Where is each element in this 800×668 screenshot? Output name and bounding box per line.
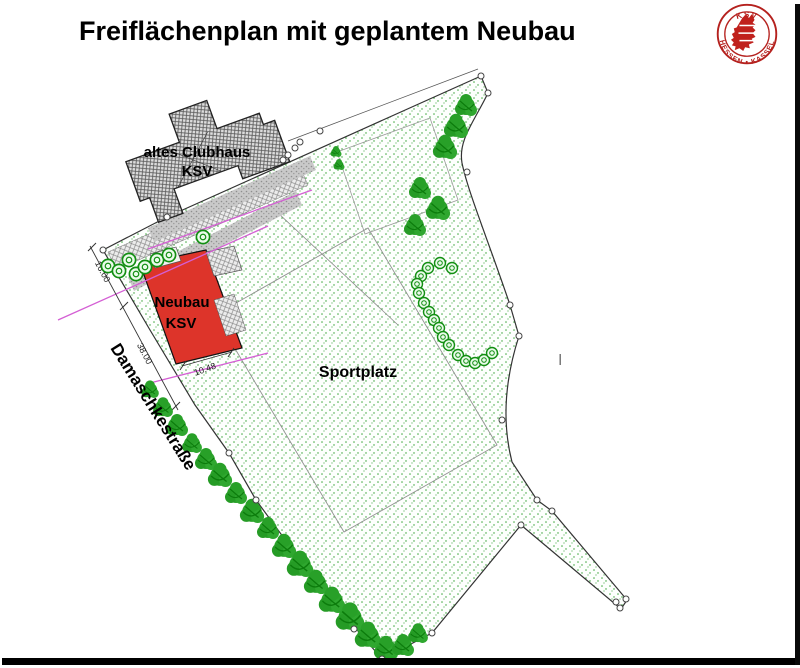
old-clubhouse-label-line2: KSV [182,163,213,180]
bottom-border-bar [2,658,798,665]
sportplatz-label: Sportplatz [319,364,397,381]
old-clubhouse-label-line1: altes Clubhaus [144,144,251,161]
site-plan: altes Clubhaus KSV Neubau KSV 16.00 38.0… [0,0,800,668]
slide: Freiflächenplan mit geplantem Neubau KSV… [0,0,800,668]
new-building-label-line1: Neubau [154,294,209,311]
dimension-label-2: 38.00 [135,341,154,366]
right-border-bar [795,4,800,665]
new-building-label-line2: KSV [166,315,197,332]
text-cursor-artifact: I [558,352,562,369]
